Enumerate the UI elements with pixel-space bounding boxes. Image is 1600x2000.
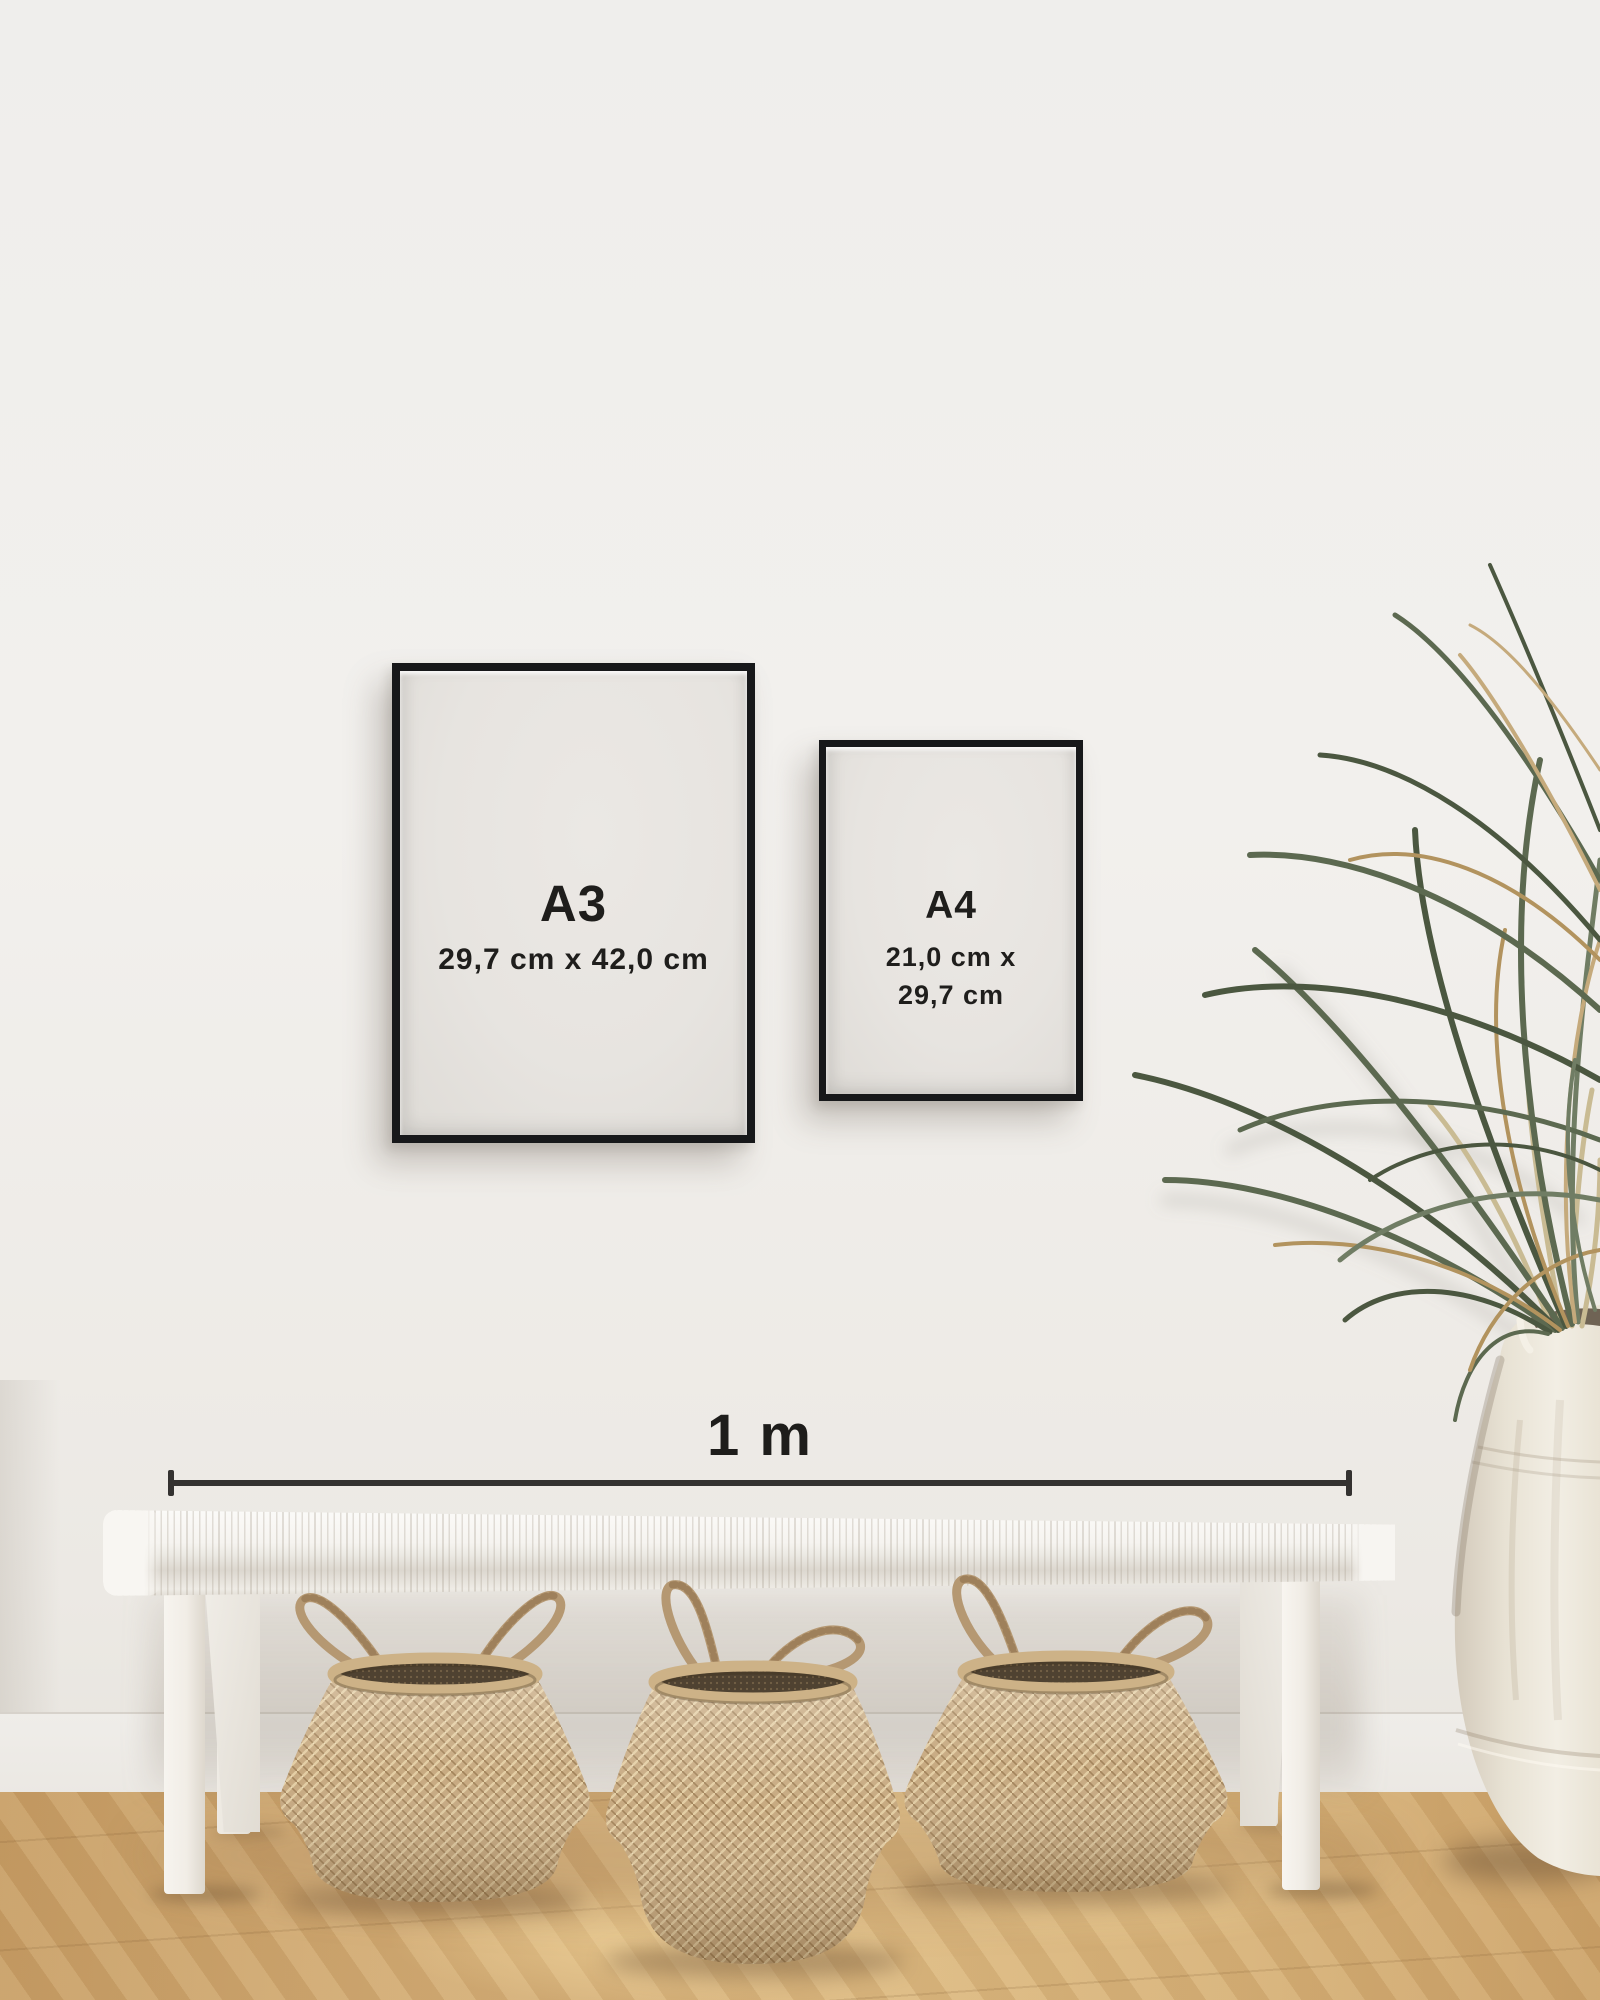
basket-1: [280, 1595, 590, 1902]
poster-label-a4: A4: [886, 884, 1017, 928]
poster-dimensions-a3: 29,7 cm x 42,0 cm: [438, 943, 709, 977]
poster-dimensions-a4-line2: 29,7 cm: [886, 976, 1017, 1014]
poster-paper-a3: A3 29,7 cm x 42,0 cm: [400, 671, 747, 1135]
poster-text-a3: A3 29,7 cm x 42,0 cm: [438, 874, 709, 977]
poster-label-a3: A3: [438, 874, 709, 933]
poster-dimensions-a4: 21,0 cm x 29,7 cm: [886, 938, 1017, 1014]
poster-dimensions-a4-line1: 21,0 cm x: [886, 938, 1017, 976]
poster-frame-a3: A3 29,7 cm x 42,0 cm: [392, 663, 755, 1143]
scale-bar-tick-left: [168, 1470, 174, 1496]
bench-leg-front-left: [164, 1584, 205, 1894]
poster-size-mockup-scene: 1 m A3 29,7 cm x 42,0 cm A4 21,0 cm x 29…: [0, 0, 1600, 2000]
poster-text-a4: A4 21,0 cm x 29,7 cm: [886, 884, 1017, 1014]
ceramic-vase: [1455, 1305, 1600, 1876]
potted-palm-plant: [1040, 540, 1600, 2000]
basket-2: [606, 1585, 900, 1964]
poster-paper-a4: A4 21,0 cm x 29,7 cm: [826, 747, 1076, 1094]
palm-leaves: [1135, 565, 1600, 1420]
